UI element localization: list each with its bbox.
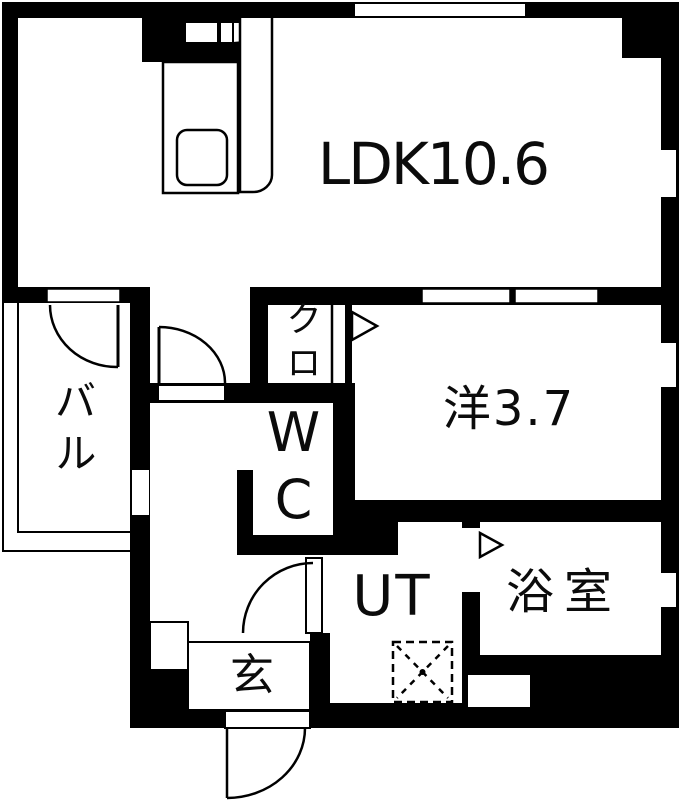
window: [661, 343, 676, 387]
refrigerator-space: [240, 18, 272, 192]
washing-machine-space: [393, 642, 452, 702]
door-swing-arc: [159, 327, 225, 383]
wall-segment: [622, 18, 679, 58]
door-opening: [462, 528, 480, 592]
door-swing-arc: [50, 305, 118, 367]
wall-segment: [2, 2, 679, 18]
wall-segment: [352, 500, 679, 522]
opening-triangle-bathroom: [480, 533, 502, 557]
floor-plan-drawing: [0, 0, 679, 800]
utility-door: [243, 558, 322, 633]
balcony-door: [50, 305, 118, 367]
window: [515, 289, 598, 303]
room-label-utility: UT: [352, 569, 431, 625]
room-label-balcony: バル: [51, 379, 93, 483]
window: [422, 289, 510, 303]
kitchen-hood-box: [220, 22, 233, 43]
window: [661, 150, 676, 197]
room-label-bathroom: 浴室: [506, 568, 622, 616]
kitchen-hood-box: [185, 22, 218, 43]
floor-plan-page: LDK10.6 洋3.7 バル クロ WC UT 浴室 玄: [0, 0, 679, 800]
wall-segment: [2, 2, 18, 303]
door-opening: [237, 403, 253, 470]
washer-center-dot: [420, 669, 426, 675]
wall-segment: [355, 520, 398, 555]
room-label-western-room: 洋3.7: [443, 385, 575, 433]
room-label-toilet: WC: [266, 401, 320, 535]
window: [132, 470, 149, 515]
front-door: [225, 711, 310, 798]
door-leaf: [306, 558, 322, 633]
door-swing-arc: [227, 728, 305, 798]
door-opening: [158, 385, 225, 401]
window: [355, 4, 525, 16]
room-label-ldk: LDK10.6: [318, 135, 548, 193]
door-leaf: [225, 711, 310, 728]
entrance-step-box: [150, 622, 188, 670]
ldk-hall-door: [159, 327, 225, 383]
room-label-closet: クロ: [282, 300, 318, 388]
wall-segment: [237, 535, 355, 555]
balcony-door-opening: [47, 289, 120, 302]
opening-triangle-western-room: [352, 312, 377, 340]
door-swing-arc: [243, 563, 313, 633]
room-label-entrance: 玄: [230, 654, 274, 698]
pipe-space: [468, 675, 530, 707]
wall-segment: [333, 383, 355, 555]
window: [661, 573, 676, 607]
kitchen-sink: [177, 130, 227, 185]
